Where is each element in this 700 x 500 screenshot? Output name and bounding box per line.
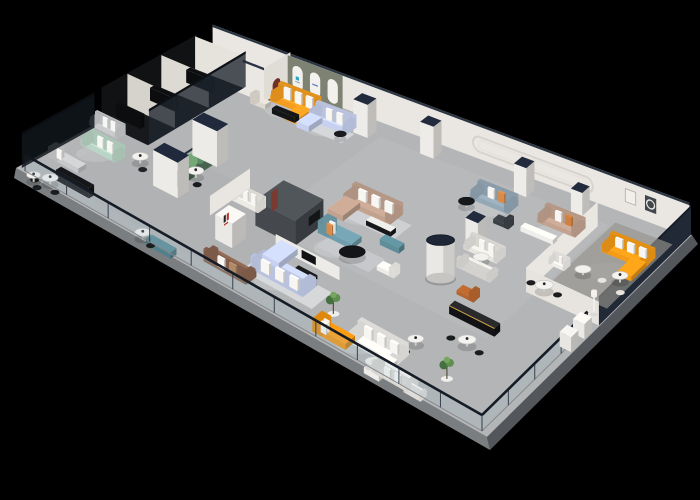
cylinder-column [425,235,456,286]
pillar [420,116,441,159]
showroom-floorplan-render [0,0,700,500]
black-side-table [334,131,347,142]
scene-canvas [0,0,700,500]
black-oval-table [339,246,366,264]
round-coffee-table [575,265,592,279]
pillar [514,157,535,198]
black-round-table [458,197,475,211]
pillar [353,93,376,138]
